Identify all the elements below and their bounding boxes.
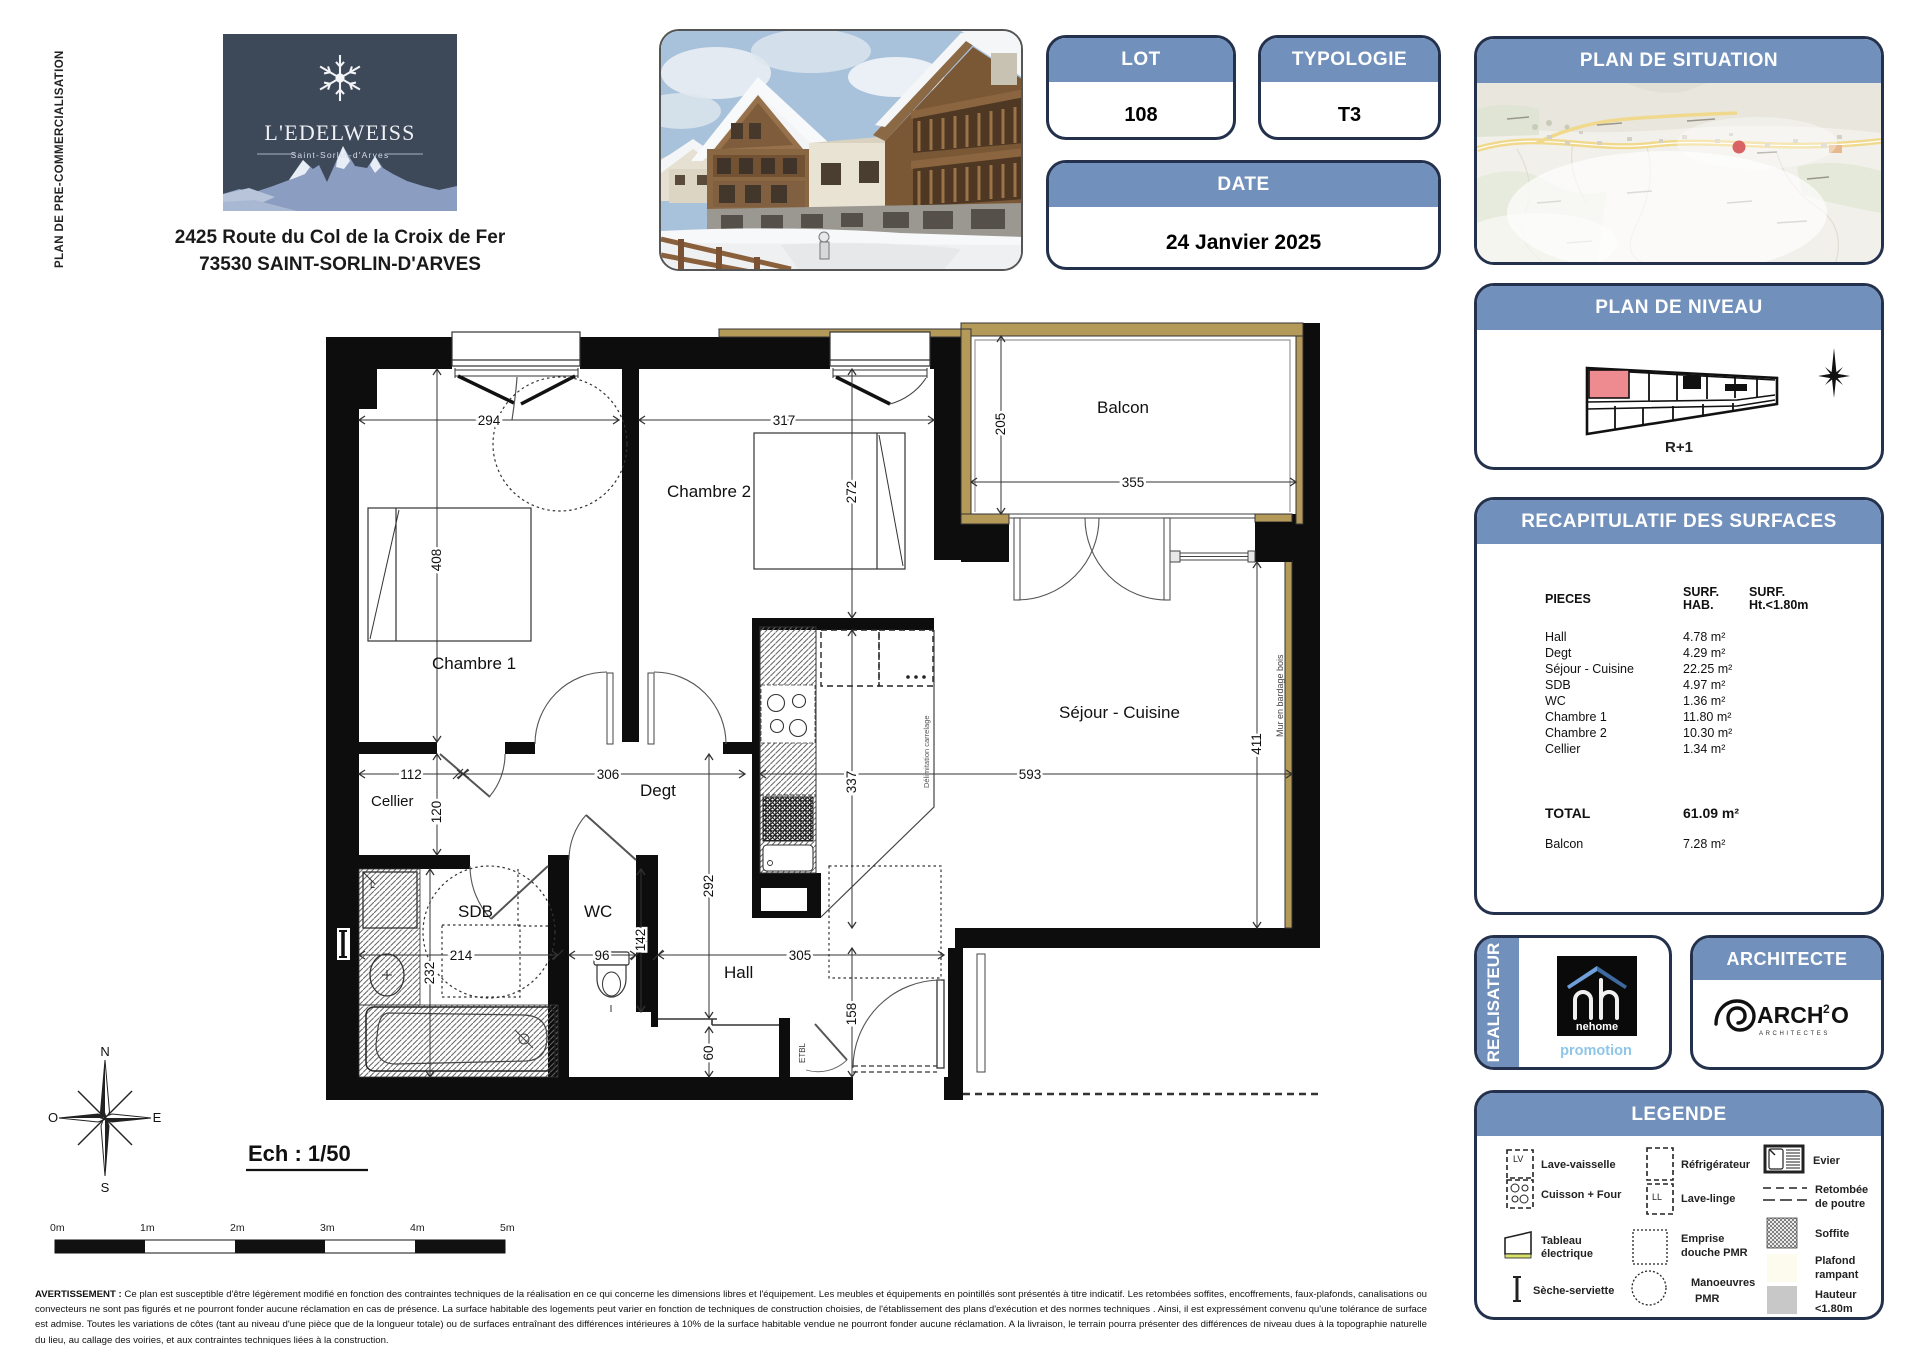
svg-text:SDB: SDB bbox=[458, 902, 493, 921]
svg-text:Mur en bardage bois: Mur en bardage bois bbox=[1275, 654, 1285, 737]
svg-text:PMR: PMR bbox=[1695, 1293, 1720, 1305]
svg-text:112: 112 bbox=[400, 767, 422, 782]
svg-text:Lave-vaisselle: Lave-vaisselle bbox=[1541, 1159, 1616, 1171]
svg-text:<1.80m: <1.80m bbox=[1815, 1303, 1853, 1315]
svg-text:Hauteur: Hauteur bbox=[1815, 1289, 1857, 1301]
svg-text:158: 158 bbox=[844, 1003, 859, 1026]
svg-text:Chambre 2: Chambre 2 bbox=[667, 482, 751, 501]
svg-text:ARCH: ARCH bbox=[1757, 1002, 1823, 1028]
svg-text:Réfrigérateur: Réfrigérateur bbox=[1681, 1159, 1751, 1171]
svg-text:Manoeuvres: Manoeuvres bbox=[1691, 1277, 1755, 1289]
svg-text:rampant: rampant bbox=[1815, 1269, 1859, 1281]
svg-text:Retombée: Retombée bbox=[1815, 1184, 1868, 1196]
svg-text:142: 142 bbox=[633, 929, 648, 952]
svg-text:nehome: nehome bbox=[1576, 1021, 1618, 1033]
svg-text:ARCHITECTES: ARCHITECTES bbox=[1759, 1031, 1830, 1037]
svg-text:96: 96 bbox=[594, 948, 609, 963]
svg-text:N: N bbox=[100, 1044, 109, 1059]
svg-text:L: L bbox=[370, 880, 375, 890]
svg-text:355: 355 bbox=[1122, 475, 1145, 490]
svg-text:292: 292 bbox=[701, 875, 716, 898]
svg-text:337: 337 bbox=[844, 771, 859, 794]
svg-text:593: 593 bbox=[1019, 767, 1042, 782]
svg-text:R+1: R+1 bbox=[1665, 439, 1693, 456]
svg-text:Degt: Degt bbox=[640, 781, 676, 800]
svg-text:317: 317 bbox=[773, 413, 796, 428]
svg-text:Chambre 1: Chambre 1 bbox=[432, 654, 516, 673]
svg-text:Hall: Hall bbox=[724, 963, 753, 982]
svg-text:douche PMR: douche PMR bbox=[1681, 1247, 1748, 1259]
svg-text:408: 408 bbox=[429, 549, 444, 572]
svg-text:305: 305 bbox=[789, 948, 812, 963]
svg-text:WC: WC bbox=[584, 902, 612, 921]
svg-text:Soffite: Soffite bbox=[1815, 1228, 1849, 1240]
svg-text:2m: 2m bbox=[230, 1222, 245, 1234]
svg-text:Balcon: Balcon bbox=[1097, 398, 1149, 417]
svg-text:232: 232 bbox=[422, 962, 437, 985]
svg-text:1m: 1m bbox=[140, 1222, 155, 1234]
svg-text:promotion: promotion bbox=[1560, 1043, 1632, 1058]
svg-text:5m: 5m bbox=[500, 1222, 515, 1234]
svg-text:S: S bbox=[101, 1180, 110, 1195]
svg-text:Ech : 1/50: Ech : 1/50 bbox=[248, 1141, 351, 1166]
svg-text:411: 411 bbox=[1249, 733, 1264, 755]
svg-text:60: 60 bbox=[701, 1045, 716, 1060]
svg-text:3m: 3m bbox=[320, 1222, 335, 1234]
svg-text:Séjour - Cuisine: Séjour - Cuisine bbox=[1059, 703, 1180, 722]
svg-text:205: 205 bbox=[993, 413, 1008, 436]
svg-text:O: O bbox=[1831, 1002, 1849, 1028]
svg-text:120: 120 bbox=[429, 801, 444, 824]
svg-text:Evier: Evier bbox=[1813, 1155, 1841, 1167]
svg-text:Sèche-serviette: Sèche-serviette bbox=[1533, 1285, 1614, 1297]
svg-text:E: E bbox=[153, 1110, 162, 1125]
svg-text:électrique: électrique bbox=[1541, 1248, 1593, 1260]
svg-text:272: 272 bbox=[844, 481, 859, 504]
svg-text:214: 214 bbox=[450, 948, 473, 963]
svg-text:LL: LL bbox=[1652, 1192, 1662, 1202]
svg-text:ETBL: ETBL bbox=[798, 1042, 807, 1063]
svg-text:306: 306 bbox=[597, 767, 620, 782]
svg-text:Plafond: Plafond bbox=[1815, 1255, 1855, 1267]
svg-text:O: O bbox=[48, 1110, 58, 1125]
svg-text:Lave-linge: Lave-linge bbox=[1681, 1193, 1735, 1205]
svg-text:294: 294 bbox=[478, 413, 501, 428]
svg-text:de poutre: de poutre bbox=[1815, 1198, 1865, 1210]
svg-text:Délimitation carrelage: Délimitation carrelage bbox=[922, 715, 931, 788]
svg-text:Cuisson + Four: Cuisson + Four bbox=[1541, 1189, 1622, 1201]
svg-text:2: 2 bbox=[1823, 1002, 1830, 1016]
svg-text:Cellier: Cellier bbox=[371, 793, 414, 810]
svg-text:4m: 4m bbox=[410, 1222, 425, 1234]
svg-text:LV: LV bbox=[1513, 1154, 1523, 1164]
svg-text:Tableau: Tableau bbox=[1541, 1235, 1582, 1247]
svg-text:0m: 0m bbox=[50, 1222, 65, 1234]
svg-text:Emprise: Emprise bbox=[1681, 1233, 1724, 1245]
